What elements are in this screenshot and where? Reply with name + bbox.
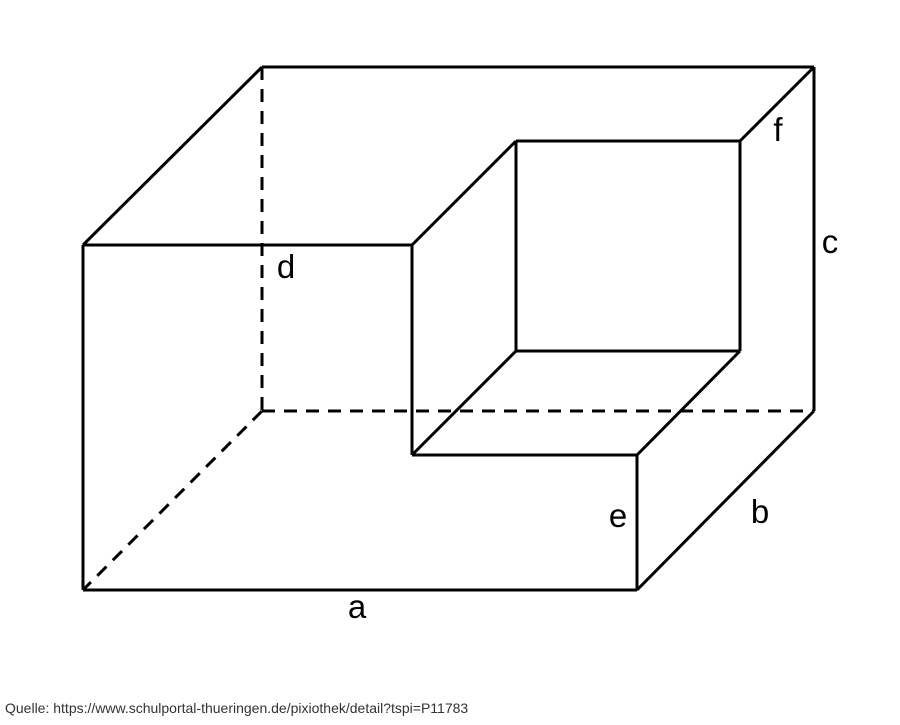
visible-edges <box>83 67 814 590</box>
edge-bottom-left-receding-hidden <box>83 411 262 590</box>
edge-label-c: c <box>822 223 839 260</box>
source-citation: Quelle: https://www.schulportal-thuering… <box>5 700 468 717</box>
hidden-edges <box>83 67 814 590</box>
diagram-canvas: a b c d e f Quelle: https://www.schulpor… <box>0 0 900 725</box>
edge-label-b: b <box>751 493 769 530</box>
edge-labels: a b c d e f <box>277 111 838 625</box>
edge-label-f: f <box>773 111 783 148</box>
edge-notch-floor-left-receding <box>412 351 516 455</box>
edge-label-e: e <box>609 497 627 534</box>
edge-top-left-receding <box>83 67 262 245</box>
edge-label-a: a <box>348 588 367 625</box>
edge-label-d: d <box>277 248 295 285</box>
solid-diagram: a b c d e f <box>0 0 900 725</box>
edge-notch-top-left-receding <box>412 141 516 245</box>
edge-bottom-right-receding <box>637 411 814 590</box>
edge-notch-floor-right-receding <box>637 351 740 455</box>
